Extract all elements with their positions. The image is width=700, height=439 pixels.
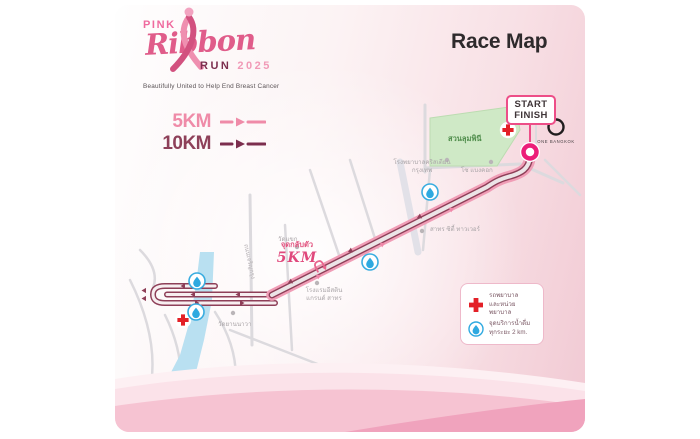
water-drop-icon [468,321,484,337]
legend-10km-row: 10KM [139,133,266,155]
water-text-line2: ทุกระยะ 2 km. [489,329,530,338]
map-key-medical-text: รถพยาบาล และหน่วยพยาบาล [489,292,537,318]
landmark-so-bangkok-label: โซ แบงคอก [461,167,493,175]
water-station-icon [362,254,378,270]
map-key-medical-row: รถพยาบาล และหน่วยพยาบาล [468,292,537,318]
hospital-line1: โรงพยาบาลคริสเตียน [391,159,453,167]
map-key-box: รถพยาบาล และหน่วยพยาบาล จุดบริการน้ำดื่ม… [460,283,544,345]
logo-run-word: RUN [200,60,231,72]
water-text-line1: จุดบริการน้ำดื่ม [489,320,530,329]
legend-10km-label: 10KM [139,133,211,155]
legend-5km-arrow-icon [220,116,266,128]
eastin-line2: แกรนด์ สาทร [295,295,353,303]
one-bangkok-label: One Bangkok [537,139,575,144]
distance-legend: 5KM 10KM [139,111,266,155]
page-title: Race Map [451,30,547,54]
medical-text-line2: และหน่วยพยาบาล [489,301,537,318]
landmark-sathorn-tower-label: สาทร ซิตี้ ทาวเวอร์ [430,226,480,234]
lumpini-park-label: สวนลุมพินี [448,133,482,145]
medical-cross-icon [468,297,484,313]
start-finish-badge: START FINISH [506,95,556,125]
water-station-icon [188,304,204,320]
logo-run-year: RUN2025 [200,60,272,72]
water-station-icon [189,273,205,289]
landmark-eastin-label: โรงแรมอีสติน แกรนด์ สาทร [295,287,353,303]
turnaround-label: จุดกลับตัว 5KM [265,239,329,265]
water-station-icon [422,184,438,200]
poster-card: One Bangkok [115,5,585,432]
badge-start-label: START [515,99,548,110]
bottom-waves [115,363,585,432]
route-10km-loop [153,286,275,303]
landmark-hospital-label: โรงพยาบาลคริสเตียน กรุงเทพ [391,159,453,175]
race-map-poster: One Bangkok [0,0,700,439]
badge-finish-label: FINISH [514,110,548,121]
turnaround-line2: 5KM [265,251,329,265]
map-key-water-row: จุดบริการน้ำดื่ม ทุกระยะ 2 km. [468,320,537,337]
legend-10km-arrow-icon [220,138,266,150]
eastin-line1: โรงแรมอีสติน [295,287,353,295]
legend-5km-row: 5KM [139,111,266,133]
hospital-line2: กรุงเทพ [391,167,453,175]
logo-tagline: Beautifully United to Help End Breast Ca… [143,83,279,90]
map-key-water-text: จุดบริการน้ำดื่ม ทุกระยะ 2 km. [489,320,530,337]
medical-text-line1: รถพยาบาล [489,292,537,301]
logo-year: 2025 [237,60,271,72]
legend-5km-label: 5KM [139,111,211,133]
landmark-wat-yannawa-label: วัดยานนาวา [218,321,251,329]
